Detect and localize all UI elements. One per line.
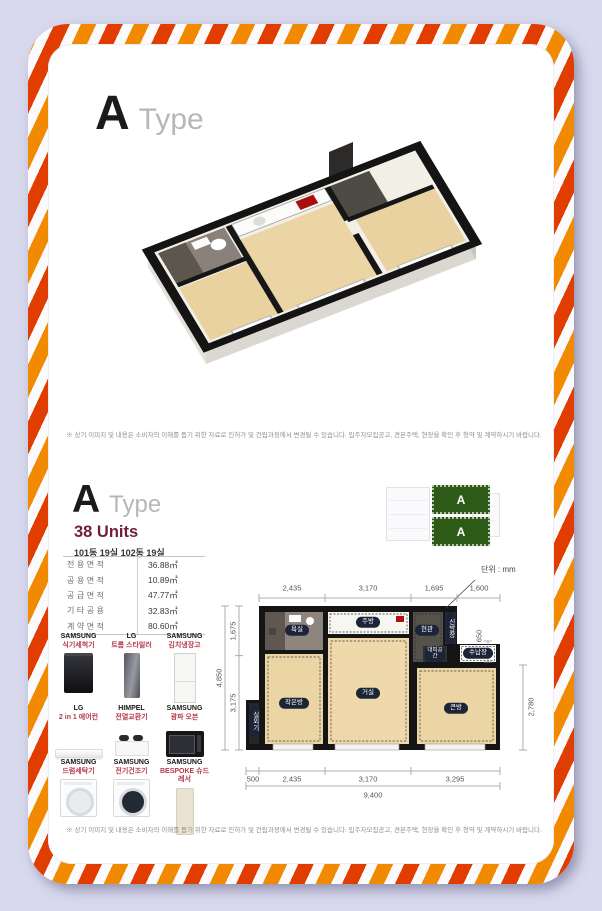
oven-icon	[166, 731, 204, 757]
appliance-name: 식기세척기	[52, 642, 105, 650]
unit-note: 단위 : mm	[481, 564, 516, 575]
area-value: 80.60㎡	[138, 620, 205, 632]
appliance-item: LG 트롬 스타일러	[105, 633, 158, 705]
area-value: 32.83㎡	[138, 605, 205, 617]
table-row: 기타공용 32.83㎡	[63, 603, 205, 618]
table-row: 전용면적 36.88㎡	[63, 557, 205, 572]
room-label-big-room: 큰방	[444, 703, 468, 714]
styler-icon	[124, 653, 140, 698]
ventilator-icon	[115, 741, 149, 756]
appliance-name: 2 in 1 에어컨	[52, 714, 105, 722]
appliance-item: SAMSUNG 김치냉장고	[158, 633, 211, 705]
dim-top-2: 3,170	[359, 584, 378, 593]
appliance-name: 전열교환기	[105, 714, 158, 722]
dim-left-1: 1,675	[229, 622, 238, 641]
appliance-item: SAMSUNG 광파 오븐	[158, 705, 211, 759]
dim-bottom-4: 3,295	[446, 775, 465, 784]
appliance-name: 트롬 스타일러	[105, 642, 158, 650]
appliance-brand: SAMSUNG	[52, 633, 105, 642]
dim-bottom-2: 2,435	[283, 775, 302, 784]
room-label-storage: 수납장	[463, 648, 493, 659]
appliance-brand: LG	[52, 705, 105, 714]
appliance-grid: SAMSUNG 식기세척기 LG 트롬 스타일러 SAMSUNG 김치냉장고 L…	[52, 633, 211, 837]
appliance-brand: SAMSUNG	[158, 759, 211, 768]
dim-top-1: 2,435	[283, 584, 302, 593]
appliance-item: HIMPEL 전열교환기	[105, 705, 158, 759]
room-label-shelter: 대피공간	[425, 647, 445, 662]
dim-bottom-total: 9,400	[364, 791, 383, 800]
area-label: 공용면적	[63, 572, 138, 587]
dim-right-2: 2,780	[527, 698, 536, 717]
area-table: 전용면적 36.88㎡ 공용면적 10.89㎡ 공급면적 47.77㎡ 기타공용…	[63, 556, 205, 635]
dim-top-3: 1,695	[425, 584, 444, 593]
room-label-bath: 욕실	[285, 625, 309, 636]
room-label-living: 거실	[356, 688, 380, 699]
dim-top-4: 1,600	[470, 584, 489, 593]
table-row: 공용면적 10.89㎡	[63, 572, 205, 587]
units-count: 38 Units	[74, 523, 138, 542]
room-label-outdoor-unit: 실외기	[249, 705, 260, 737]
table-row: 공급면적 47.77㎡	[63, 588, 205, 603]
appliance-name: BESPOKE 슈드레서	[158, 768, 211, 785]
area-value: 10.89㎡	[138, 574, 205, 586]
room-label-entry: 현관	[415, 625, 439, 636]
flyer-page: A Type	[0, 0, 602, 911]
appliance-name: 김치냉장고	[158, 642, 211, 650]
dim-bottom-3: 3,170	[359, 775, 378, 784]
top-disclaimer-text: ※ 상기 이미지 및 내용은 소비자의 이해를 돕기 위한 자료로 인허가 및 …	[58, 429, 550, 439]
site-location-map: A A	[386, 479, 498, 551]
area-value: 36.88㎡	[138, 559, 205, 571]
appliance-brand: LG	[105, 633, 158, 642]
floorplan-drawing	[213, 558, 565, 810]
appliance-brand: HIMPEL	[105, 705, 158, 714]
room-label-shoe: 신발장	[445, 612, 456, 644]
area-value: 47.77㎡	[138, 589, 205, 601]
section-title-letter: A	[72, 480, 100, 519]
bottom-disclaimer-text: ※ 상기 이미지 및 내용은 소비자의 이해를 돕기 위한 자료로 인허가 및 …	[58, 824, 550, 834]
floorplan-2d: 단위 : mm 2,435 3,170 1,695 1,600 500 2,43…	[213, 558, 565, 810]
dishwasher-icon	[64, 653, 93, 693]
air-conditioner-icon	[55, 749, 103, 758]
dim-right-1: 650	[475, 630, 484, 643]
washer-icon	[60, 779, 97, 817]
dryer-icon	[113, 779, 150, 817]
kimchi-fridge-icon	[174, 653, 196, 703]
appliance-item: SAMSUNG 식기세척기	[52, 633, 105, 705]
appliance-brand: SAMSUNG	[158, 705, 211, 714]
isometric-floorplan-image	[113, 126, 499, 426]
site-building-outline	[386, 487, 430, 541]
area-label: 계약면적	[63, 619, 138, 634]
appliance-brand: SAMSUNG	[52, 759, 105, 768]
site-block-a2: A	[432, 517, 490, 546]
table-row: 계약면적 80.60㎡	[63, 619, 205, 634]
room-label-kitchen: 주방	[356, 617, 380, 628]
area-label: 기타공용	[63, 603, 138, 618]
dim-left-total: 4,850	[215, 669, 224, 688]
appliance-item: LG 2 in 1 에어컨	[52, 705, 105, 759]
site-block-a1: A	[432, 485, 490, 514]
appliance-name: 드럼세탁기	[52, 768, 105, 776]
section-title: A Type	[72, 480, 161, 519]
section-title-word: Type	[109, 493, 161, 517]
appliance-brand: SAMSUNG	[105, 759, 158, 768]
dim-bottom-1: 500	[247, 775, 260, 784]
appliance-brand: SAMSUNG	[158, 633, 211, 642]
area-label: 전용면적	[63, 557, 138, 572]
room-label-small-room: 작은방	[279, 698, 309, 709]
dim-left-2: 3,175	[229, 694, 238, 713]
appliance-name: 전기건조기	[105, 768, 158, 776]
area-label: 공급면적	[63, 588, 138, 603]
appliance-name: 광파 오븐	[158, 714, 211, 722]
